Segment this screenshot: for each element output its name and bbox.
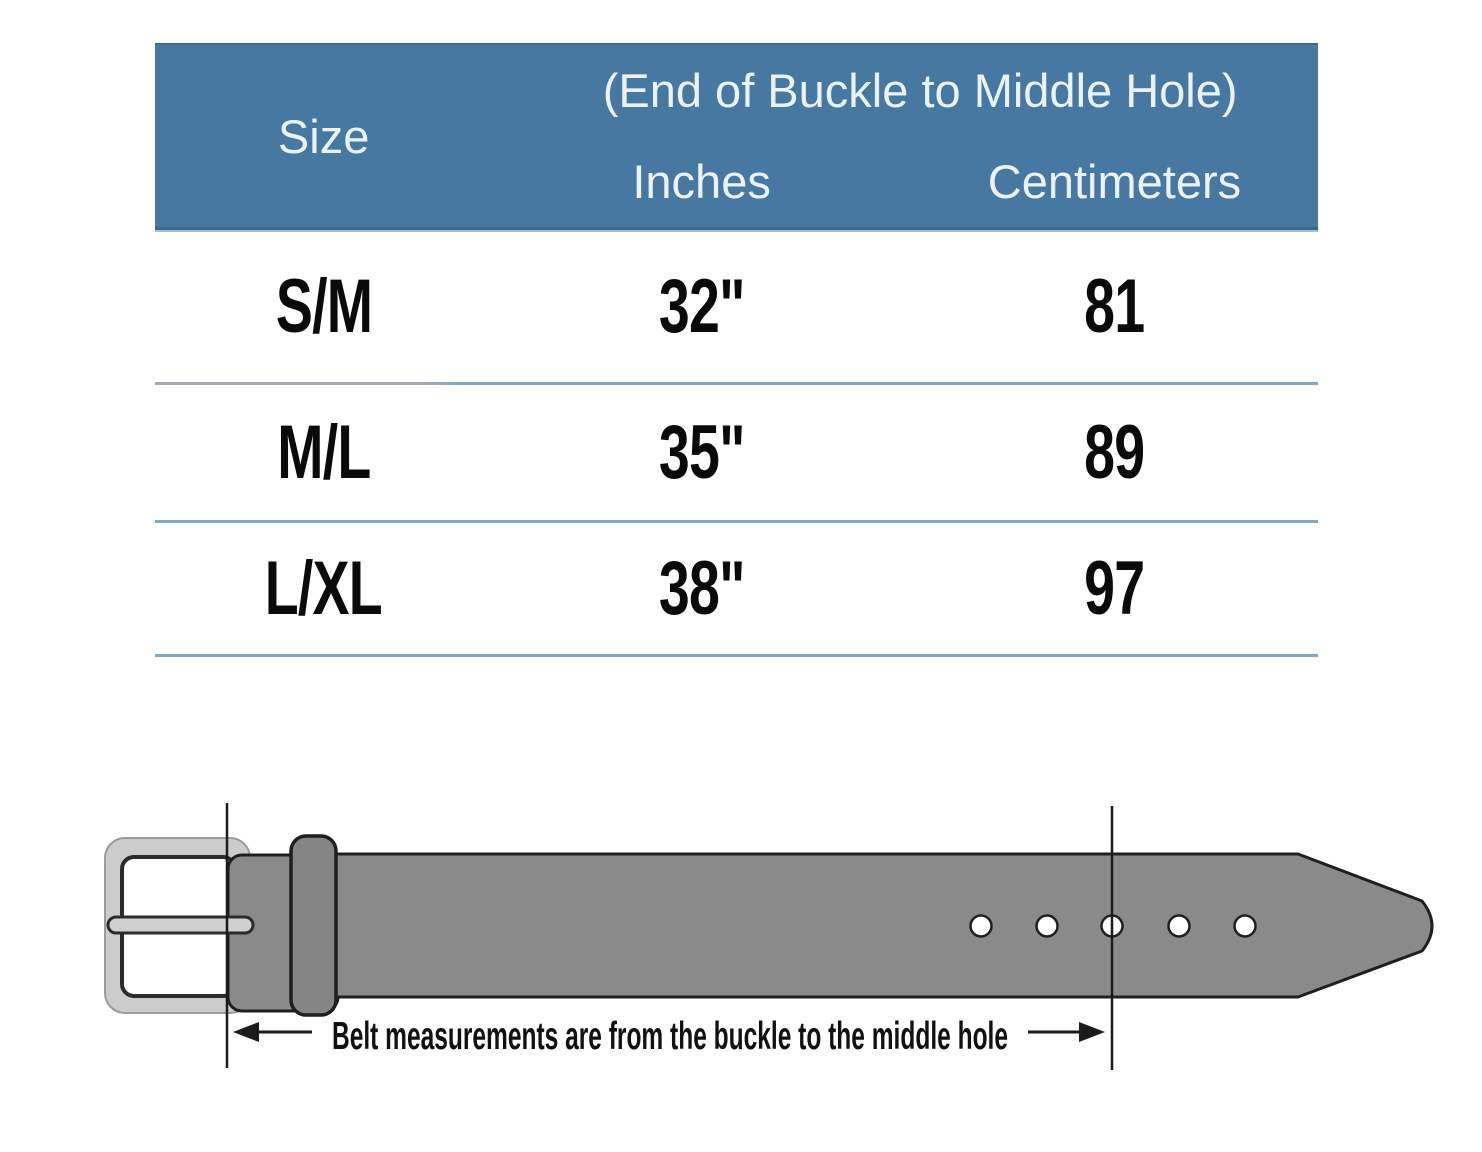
belt-loop: [291, 836, 336, 1015]
arrow-right-icon: [1079, 1022, 1105, 1042]
table-row: M/L 35" 89: [155, 385, 1318, 520]
size-header-label: Size: [278, 109, 369, 164]
belt-size-chart-page: Size (End of Buckle to Middle Hole) Inch…: [0, 0, 1482, 1152]
column-header-centimeters: Centimeters: [911, 136, 1318, 227]
centimeters-cell: 81: [911, 263, 1318, 350]
inches-cell: 35": [492, 409, 911, 496]
inches-cell: 38": [492, 545, 911, 632]
subtitle-label: (End of Buckle to Middle Hole): [603, 63, 1238, 118]
belt-hole: [1235, 916, 1256, 937]
belt-strap: [318, 854, 1432, 997]
centimeters-header-label: Centimeters: [988, 154, 1241, 209]
inches-cell: 32": [492, 263, 911, 350]
size-cell: S/M: [155, 263, 492, 350]
table-subtitle: (End of Buckle to Middle Hole): [492, 45, 1318, 136]
buckle-prong: [108, 917, 253, 933]
belt-hole: [971, 916, 992, 937]
column-header-inches: Inches: [492, 136, 911, 227]
inches-header-label: Inches: [632, 154, 770, 209]
centimeters-cell: 97: [911, 545, 1318, 632]
column-header-size: Size: [155, 45, 492, 227]
table-row: S/M 32" 81: [155, 230, 1318, 382]
table-row: L/XL 38" 97: [155, 523, 1318, 654]
size-table: Size (End of Buckle to Middle Hole) Inch…: [155, 43, 1318, 657]
size-cell: M/L: [155, 409, 492, 496]
belt-hole: [1169, 916, 1190, 937]
arrow-left-icon: [233, 1022, 259, 1042]
belt-hole: [1037, 916, 1058, 937]
table-header: Size (End of Buckle to Middle Hole) Inch…: [155, 43, 1318, 230]
size-cell: L/XL: [155, 545, 492, 632]
row-divider: [155, 654, 1318, 657]
centimeters-cell: 89: [911, 409, 1318, 496]
belt-diagram: Belt measurements are from the buckle to…: [0, 780, 1482, 1110]
measurement-caption: Belt measurements are from the buckle to…: [332, 1015, 1008, 1058]
